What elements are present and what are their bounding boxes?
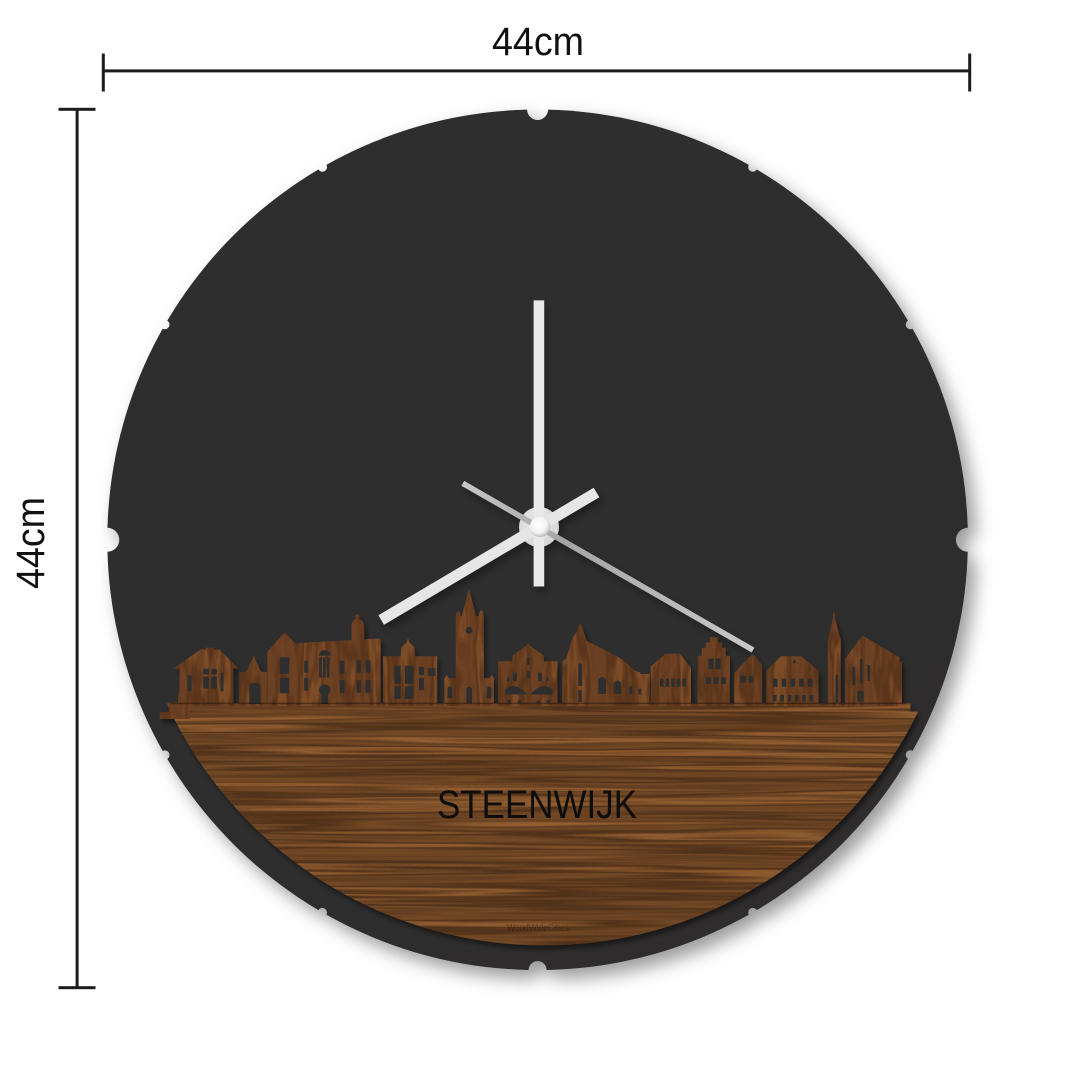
svg-text:WoodWideCities: WoodWideCities: [507, 923, 569, 934]
svg-text:STEENWIJK: STEENWIJK: [437, 783, 637, 827]
